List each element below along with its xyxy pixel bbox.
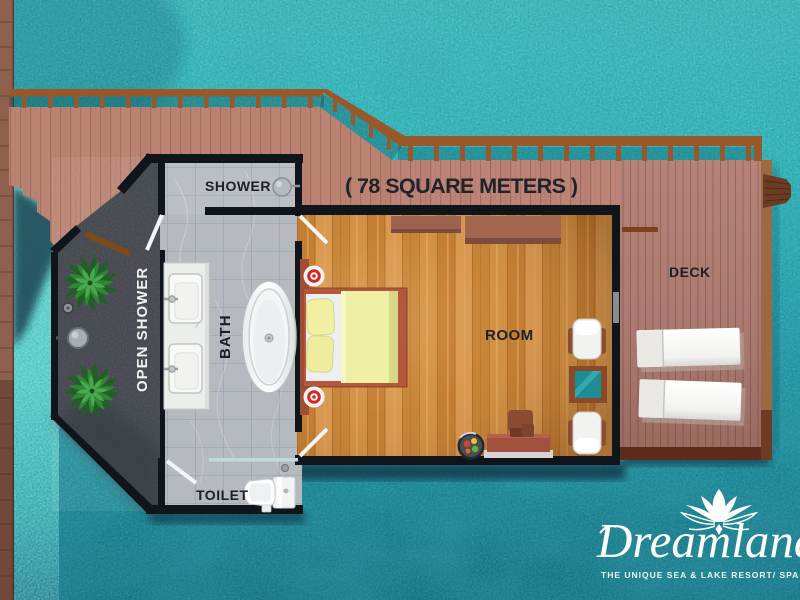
svg-text:ROOM: ROOM bbox=[485, 327, 534, 344]
svg-text:OPEN SHOWER: OPEN SHOWER bbox=[134, 267, 151, 392]
svg-text:DECK: DECK bbox=[669, 264, 711, 280]
svg-text:( 78 SQUARE METERS ): ( 78 SQUARE METERS ) bbox=[345, 174, 578, 198]
svg-text:Dreamland: Dreamland bbox=[596, 513, 800, 568]
svg-text:THE UNIQUE SEA & LAKE RESORT/: THE UNIQUE SEA & LAKE RESORT/ SPA bbox=[601, 570, 799, 580]
svg-text:TOILET: TOILET bbox=[196, 487, 249, 503]
svg-text:SHOWER: SHOWER bbox=[205, 178, 271, 194]
svg-text:BATH: BATH bbox=[217, 314, 234, 359]
